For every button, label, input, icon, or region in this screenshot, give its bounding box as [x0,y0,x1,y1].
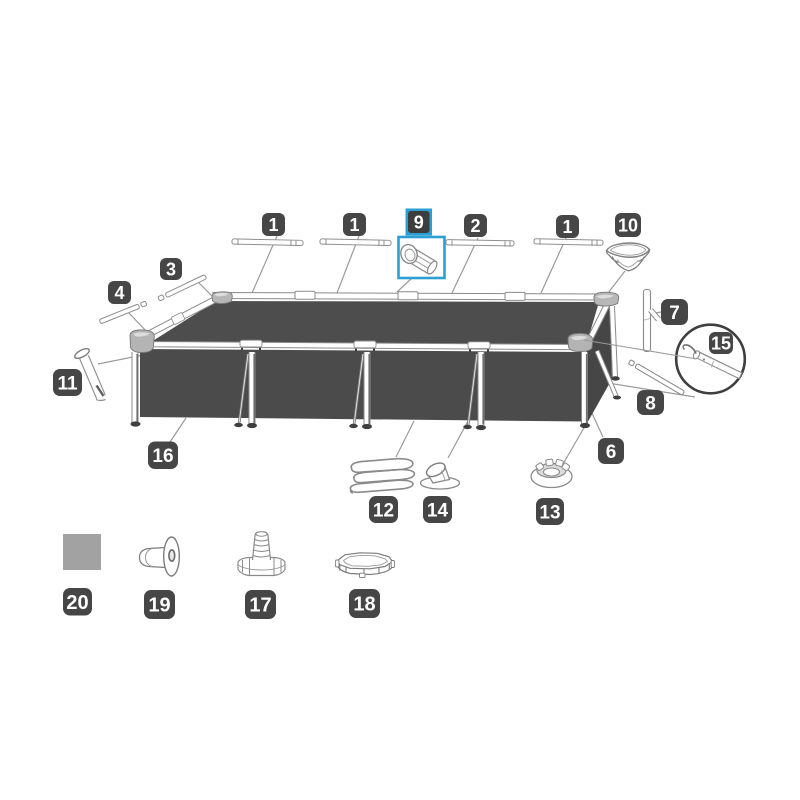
svg-text:6: 6 [606,442,617,463]
svg-text:20: 20 [66,592,88,614]
svg-text:13: 13 [539,502,560,523]
svg-text:11: 11 [57,373,78,394]
svg-text:12: 12 [373,500,394,521]
svg-text:9: 9 [414,213,424,233]
svg-text:10: 10 [618,216,638,236]
svg-text:1: 1 [562,217,572,237]
svg-text:19: 19 [148,595,170,617]
svg-text:14: 14 [427,500,449,521]
svg-text:8: 8 [645,393,656,414]
svg-text:3: 3 [166,260,176,280]
svg-text:1: 1 [268,215,278,235]
svg-text:17: 17 [249,595,271,617]
svg-text:4: 4 [114,283,124,303]
svg-text:1: 1 [349,215,359,235]
svg-text:7: 7 [669,303,680,324]
svg-text:2: 2 [470,216,480,236]
svg-text:15: 15 [711,334,731,354]
svg-text:16: 16 [152,446,173,467]
svg-text:18: 18 [353,594,375,616]
